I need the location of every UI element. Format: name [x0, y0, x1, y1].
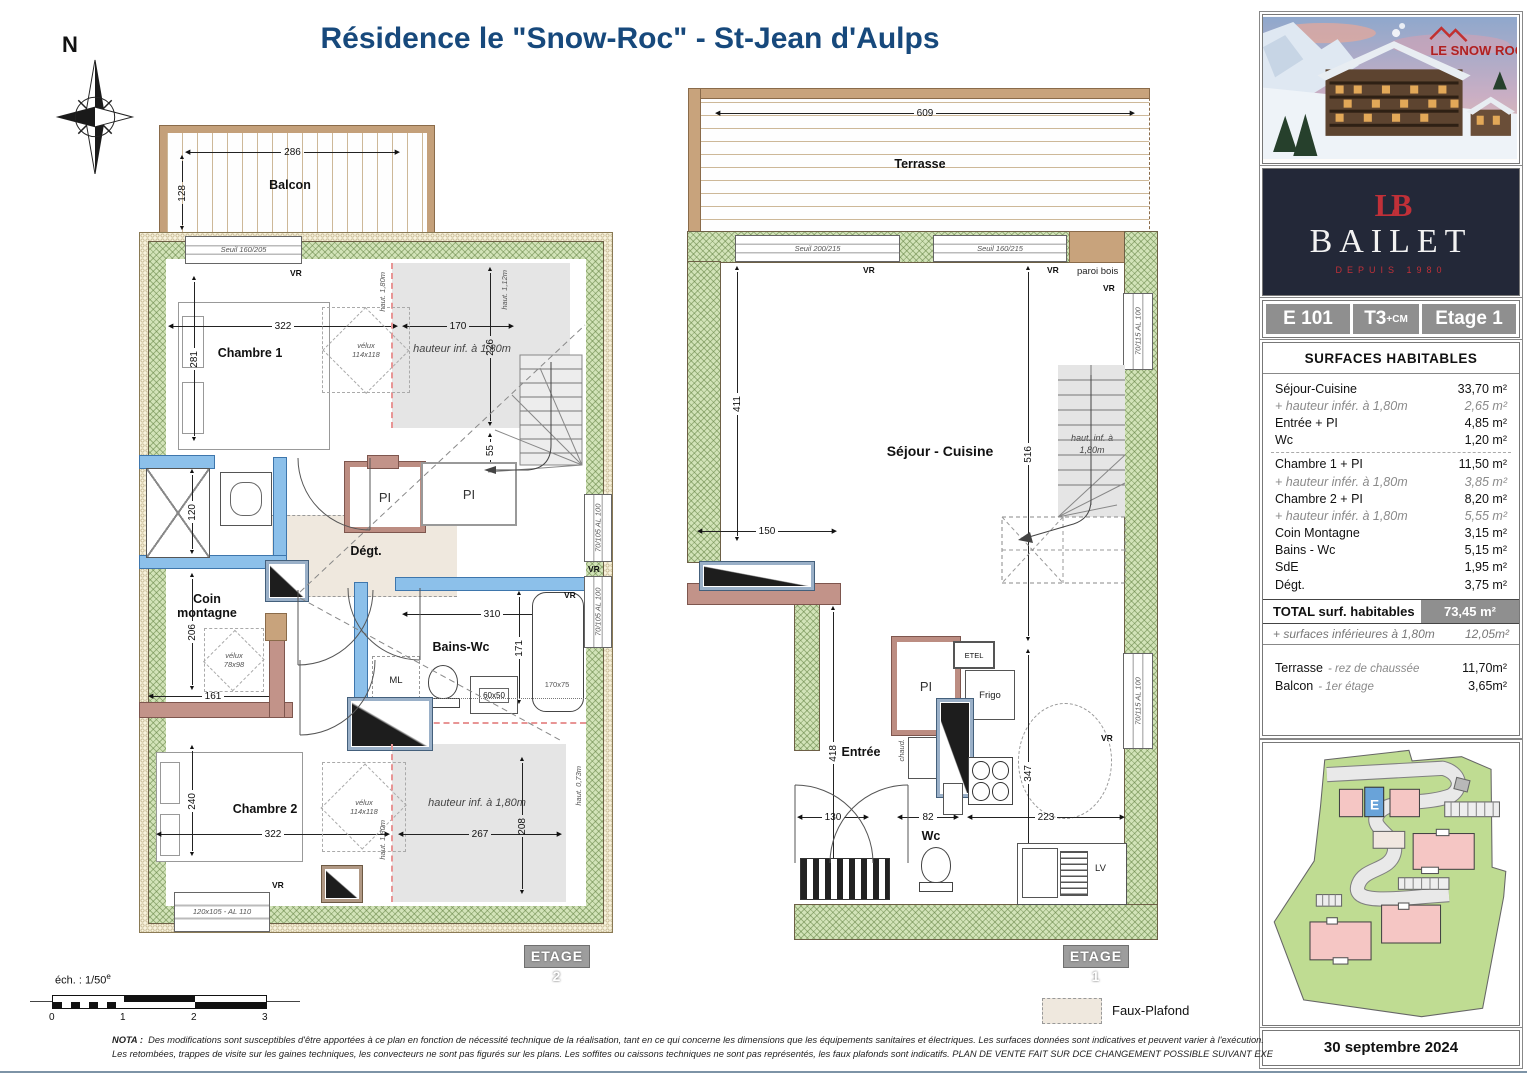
compass-north-label: N — [62, 32, 78, 58]
plan2-linework — [140, 120, 618, 972]
scale-bar — [52, 995, 267, 1009]
nota-line2: Les retombées, trappes de visite sur les… — [112, 1049, 1273, 1059]
surface-row: SdE1,95 m² — [1263, 559, 1519, 576]
floor-plan-etage-2: ◀286▶ ▲128▼ Balcon Seuil 160/205 VR Cham… — [140, 120, 618, 972]
brand-since: DEPUIS 1980 — [1335, 265, 1446, 275]
total-value: 73,45 m² — [1421, 600, 1519, 623]
scale-tick-0: 0 — [49, 1012, 55, 1023]
floor-plan-sheet: Résidence le "Snow-Roc" - St-Jean d'Aulp… — [0, 0, 1527, 1080]
plan1-linework — [685, 85, 1160, 975]
terrasse-row: Terrasse- rez de chaussée11,70m² — [1263, 659, 1519, 677]
site-plan-map: E — [1263, 743, 1517, 1023]
surface-row: Chambre 2 + PI8,20 m² — [1263, 490, 1519, 507]
chalet-render: LE SNOW ROC — [1263, 15, 1517, 161]
scale-tick-2: 2 — [191, 1012, 197, 1023]
balcon-row: Balcon- 1er étage3,65m² — [1263, 677, 1519, 695]
surface-row: Chambre 1 + PI11,50 m² — [1263, 456, 1519, 473]
sheet-bottom-rule — [0, 1071, 1527, 1073]
scale-tick-3: 3 — [262, 1012, 268, 1023]
surface-row: Séjour-Cuisine33,70 m² — [1263, 380, 1519, 397]
surface-row: Wc1,20 m² — [1263, 432, 1519, 449]
surface-row: Dégt.3,75 m² — [1263, 576, 1519, 593]
faux-plafond-label: Faux-Plafond — [1112, 1003, 1189, 1018]
surfaces-panel: SURFACES HABITABLES Séjour-Cuisine33,70 … — [1262, 342, 1520, 736]
faux-plafond-swatch — [1042, 998, 1102, 1024]
compass-icon — [50, 56, 140, 174]
date-box: 30 septembre 2024 — [1262, 1030, 1520, 1066]
total-row: TOTAL surf. habitables 73,45 m² — [1263, 599, 1519, 624]
site-plan-building-e: E — [1370, 797, 1379, 812]
floor-plan-etage-1: ◀609▶ Terrasse Seuil 200/215 Seuil 160/2… — [685, 85, 1160, 975]
brand-panel: LB BAILET DEPUIS 1980 — [1262, 168, 1520, 296]
floor-tag-etage1: ETAGE 1 — [1063, 945, 1129, 968]
surface-row: + hauteur infér. à 1,80m3,85 m² — [1263, 473, 1519, 490]
scale-label: éch. : 1/50e — [55, 972, 111, 987]
surface-row: + hauteur infér. à 1,80m5,55 m² — [1263, 507, 1519, 524]
site-plan: E — [1262, 742, 1520, 1026]
surfaces-rows: Séjour-Cuisine33,70 m² + hauteur infér. … — [1263, 374, 1519, 595]
surfaces-title: SURFACES HABITABLES — [1263, 343, 1519, 374]
floor-tag-etage2: ETAGE 2 — [524, 945, 590, 968]
inferior-surfaces-row: + surfaces inférieures à 1,80m12,05m² — [1263, 624, 1519, 645]
snow-roc-logo: LE SNOW ROC — [1430, 43, 1517, 58]
unit-type: T3+CM — [1353, 304, 1419, 334]
surface-row: Bains - Wc5,15 m² — [1263, 542, 1519, 559]
page-title: Résidence le "Snow-Roc" - St-Jean d'Aulp… — [180, 22, 1080, 56]
brand-name: BAILET — [1310, 223, 1473, 260]
building-photo: LE SNOW ROC — [1262, 14, 1520, 164]
surface-row: Entrée + PI4,85 m² — [1263, 414, 1519, 431]
surface-row: + hauteur infér. à 1,80m2,65 m² — [1263, 397, 1519, 414]
scale-tick-1: 1 — [120, 1012, 126, 1023]
nota-line1: NOTA : Des modifications sont susceptibl… — [112, 1035, 1264, 1045]
unit-header: E 101 T3+CM Etage 1 — [1262, 300, 1520, 338]
surface-row: Coin Montagne3,15 m² — [1263, 525, 1519, 542]
unit-code: E 101 — [1266, 304, 1350, 334]
unit-floor: Etage 1 — [1422, 304, 1516, 334]
total-label: TOTAL surf. habitables — [1263, 600, 1421, 623]
brand-monogram: LB — [1375, 189, 1408, 221]
row-divider — [1271, 452, 1511, 453]
